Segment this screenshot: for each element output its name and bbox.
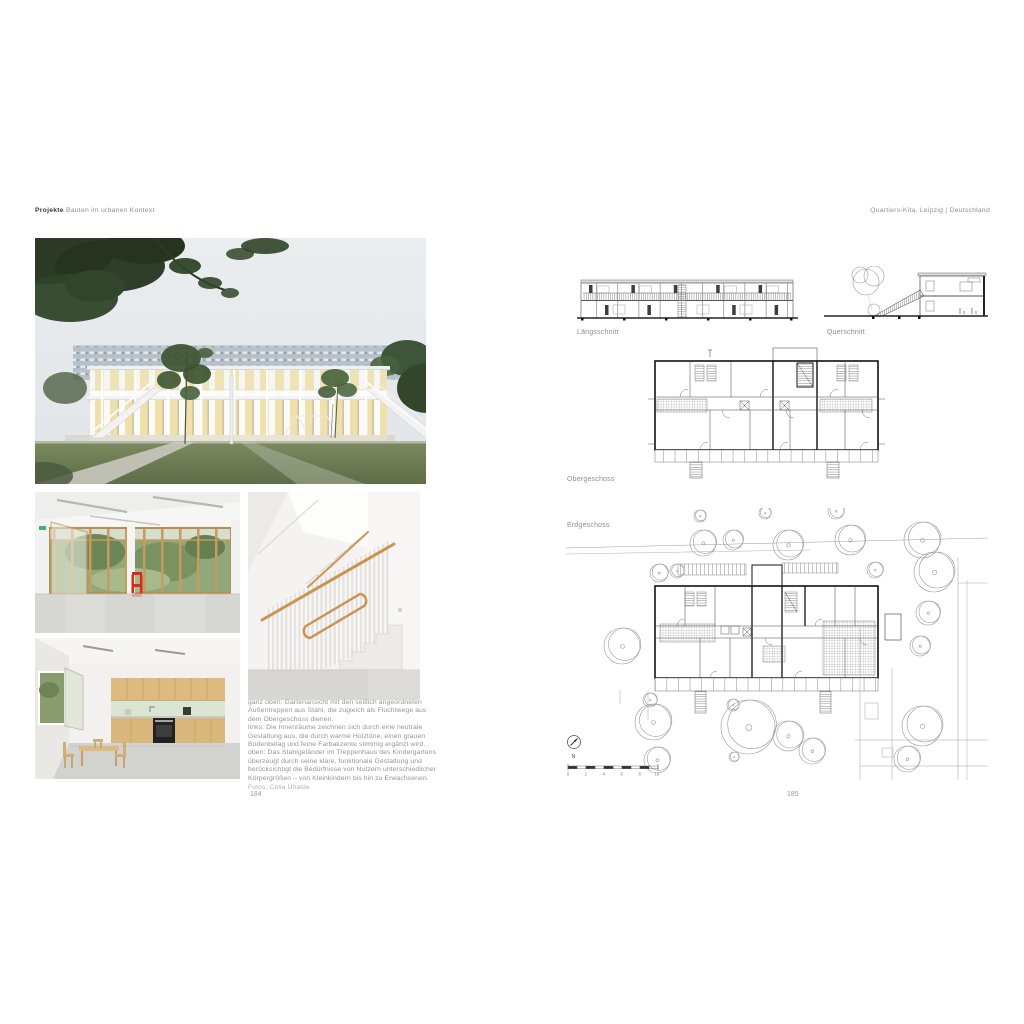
caption-line: Bodenbelag und feine Farbakzente stimmig… xyxy=(248,741,430,749)
page-number-right: 185 xyxy=(787,791,799,798)
running-head-right: Quartiers-Kita, Leipzig | Deutschland xyxy=(0,207,990,214)
caption-line: dem Obergeschoss dienen. xyxy=(248,716,430,724)
label-laengsschnitt: Längsschnitt xyxy=(577,329,619,336)
caption-line: berücksichtigt die Bedürfnisse von Nutze… xyxy=(248,766,430,774)
book-spread: Projekte Bauten im urbanen Kontext xyxy=(0,0,1024,1024)
caption-line: Körpergrößen – von Kleinkindern bis hin … xyxy=(248,775,430,783)
photo-staircase-graphic xyxy=(248,492,420,700)
drawing-cross-section xyxy=(822,266,990,324)
stair-shaft xyxy=(797,363,813,387)
label-obergeschoss: Obergeschoss xyxy=(567,476,615,483)
drawing-longitudinal-section xyxy=(575,272,800,324)
caption-line: Außentreppen aus Stahl, die zugleich als… xyxy=(248,707,430,715)
flag-pole xyxy=(230,376,233,444)
photo-interior-graphic xyxy=(35,492,240,633)
caption-line: links: Die Innenräume zeichnen sich durc… xyxy=(248,724,430,732)
longitudinal-section-graphic xyxy=(575,272,800,324)
scale-tick-label: 4 xyxy=(603,772,606,777)
page-number-left: 184 xyxy=(250,791,262,798)
scale-tick-label: 2 xyxy=(585,772,588,777)
photo-garden-view-graphic xyxy=(35,238,426,484)
photo-garden-view xyxy=(35,238,426,484)
photo-credit: Fotos: Célia Uhalde xyxy=(248,784,430,792)
photo-kitchen-graphic xyxy=(35,638,240,779)
tree-sketch xyxy=(852,266,884,316)
scale-tick-label: 8 xyxy=(639,772,642,777)
caption-line: ganz oben: Gartenansicht mit den seitlic… xyxy=(248,699,430,707)
scale-bar: 0 2 4 6 8 10 xyxy=(567,764,660,777)
north-label: N xyxy=(572,754,576,760)
caption-line: oben: Das Stahlgeländer im Treppenhaus d… xyxy=(248,749,430,757)
running-head-right-text: Quartiers-Kita, Leipzig | Deutschland xyxy=(870,207,990,214)
caption-line: überzeugt durch seine klare, funktionale… xyxy=(248,758,430,766)
photo-kitchen xyxy=(35,638,240,779)
drawing-ground-floor-site-plan: N 0 2 4 6 8 xyxy=(560,508,990,786)
lawn xyxy=(35,441,426,484)
floor xyxy=(248,670,420,700)
north-arrow-icon: N xyxy=(568,736,581,761)
ground-floor-plan-graphic: N 0 2 4 6 8 xyxy=(560,508,990,786)
photo-interior-grouproom xyxy=(35,492,240,633)
upper-floor-plan-graphic xyxy=(640,347,890,492)
open-casement xyxy=(65,668,83,730)
scale-tick-label: 10 xyxy=(655,772,660,777)
floor xyxy=(35,594,240,633)
open-door-panel xyxy=(51,522,87,604)
caption-block: ganz oben: Gartenansicht mit den seitlic… xyxy=(248,699,430,792)
label-querschnitt: Querschnitt xyxy=(827,329,865,336)
photo-staircase xyxy=(248,492,420,700)
external-stair xyxy=(874,290,924,316)
drawing-upper-floor-plan xyxy=(640,347,890,492)
cross-section-graphic xyxy=(822,266,990,324)
exterior-stairs-down xyxy=(690,462,839,478)
scale-tick-label: 6 xyxy=(621,772,624,777)
caption-line: Gestaltung aus, die durch warme Holztöne… xyxy=(248,733,430,741)
kitchen-run xyxy=(111,678,225,746)
balcony-strip xyxy=(655,450,878,462)
exit-sign xyxy=(39,526,46,530)
label-erdgeschoss: Erdgeschoss xyxy=(567,522,610,529)
wall-fixture xyxy=(398,608,402,612)
scale-tick-label: 0 xyxy=(567,772,570,777)
building-plan xyxy=(655,565,901,713)
section-markers xyxy=(708,350,780,357)
